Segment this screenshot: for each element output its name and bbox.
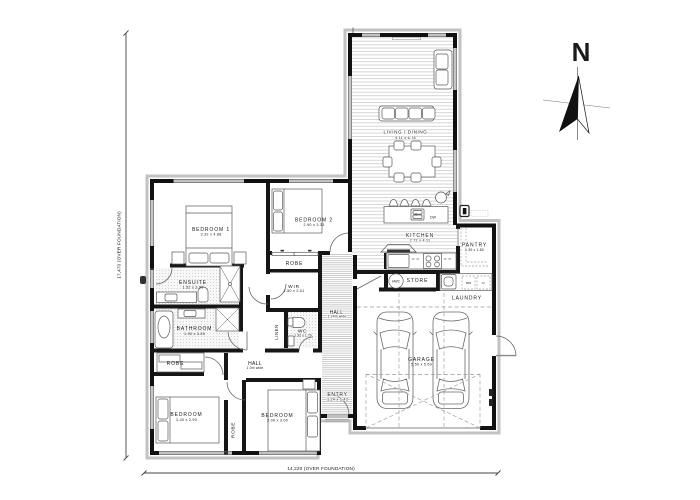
svg-text:3.40 x 2.90: 3.40 x 2.90: [176, 418, 197, 422]
svg-text:ROBE: ROBE: [167, 361, 185, 367]
svg-text:HWC: HWC: [392, 280, 401, 284]
svg-text:1.32 x 1.79: 1.32 x 1.79: [294, 333, 311, 337]
svg-text:4.11 x 6.78: 4.11 x 6.78: [395, 136, 416, 140]
svg-text:1.52 x 3.99: 1.52 x 3.99: [183, 286, 204, 290]
svg-text:LINEN: LINEN: [274, 324, 279, 339]
svg-text:1.90 x 3.59: 1.90 x 3.59: [184, 332, 205, 336]
svg-text:DW: DW: [430, 216, 436, 220]
svg-text:LAUNDRY: LAUNDRY: [452, 296, 482, 302]
svg-text:1.24m wide: 1.24m wide: [328, 315, 347, 319]
svg-text:1.0m wide: 1.0m wide: [247, 366, 264, 370]
svg-text:3.00 x 3.00: 3.00 x 3.00: [267, 419, 288, 423]
svg-text:N: N: [572, 37, 591, 67]
svg-text:ROBE: ROBE: [286, 261, 304, 267]
svg-text:2.90 x 3.33: 2.90 x 3.33: [304, 223, 325, 227]
svg-text:STORE: STORE: [407, 278, 429, 284]
svg-text:1.50 x 2.01: 1.50 x 2.01: [284, 289, 305, 293]
svg-text:3.32 x 4.88: 3.32 x 4.88: [201, 232, 222, 236]
svg-text:1.39 x 1.80: 1.39 x 1.80: [465, 248, 484, 252]
svg-text:14,220 (OVER FOUNDATION): 14,220 (OVER FOUNDATION): [287, 466, 355, 471]
svg-text:MW: MW: [466, 281, 471, 285]
svg-text:17,470 (OVER FOUNDATION): 17,470 (OVER FOUNDATION): [117, 211, 122, 279]
svg-text:ROBE: ROBE: [231, 422, 237, 438]
svg-text:1.24 x 1.43: 1.24 x 1.43: [327, 397, 348, 401]
svg-text:5.50 x 5.60: 5.50 x 5.60: [411, 362, 432, 366]
svg-text:2.72 x 4.11: 2.72 x 4.11: [410, 239, 431, 243]
svg-text:LIVING / DINING: LIVING / DINING: [384, 130, 428, 135]
